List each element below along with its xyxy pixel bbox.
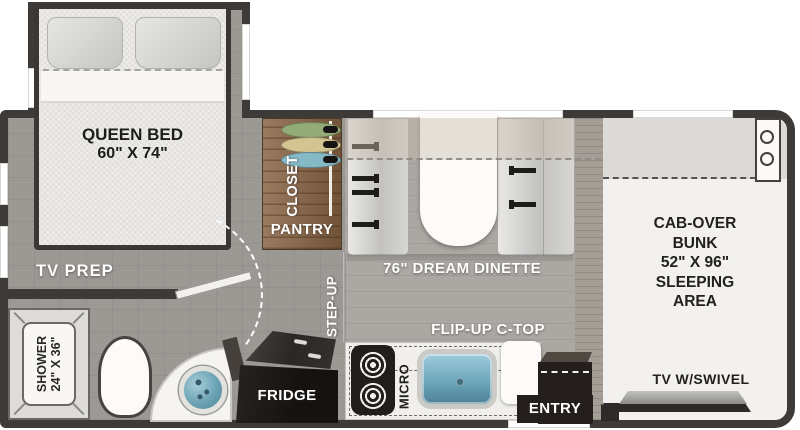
tv-swivel: [619, 391, 747, 404]
fridge-top-face: [240, 331, 336, 369]
shower-bevel: [72, 312, 84, 324]
cooktop: [351, 345, 395, 415]
hanger-hook-icon: [323, 126, 338, 133]
cab-over-line3: 52" X 96": [607, 253, 783, 273]
toilet: [98, 336, 152, 418]
pillow: [47, 17, 123, 69]
cab-over-dashed-line: [603, 177, 756, 179]
shower-label-line2: 24" X 36": [49, 316, 63, 412]
tv-swivel-label: TV W/SWIVEL: [620, 371, 782, 387]
cab-over-line2: BUNK: [607, 234, 783, 254]
burner-icon: [359, 351, 387, 379]
cab-over-line4: SLEEPING: [607, 273, 783, 293]
shower-bevel: [13, 312, 25, 324]
dinette-label: 76" DREAM DINETTE: [348, 260, 576, 277]
burner-icon: [359, 382, 387, 410]
kitchen-sink: [417, 349, 497, 409]
bathroom-wall: [0, 289, 178, 299]
flip-up-ctop-label: FLIP-UP C-TOP: [398, 321, 578, 338]
overhead-cabinet-tint: [346, 118, 574, 160]
hanger-hook-icon: [323, 156, 338, 163]
cab-over-line1: CAB-OVER: [607, 214, 783, 234]
bench-handle: [512, 168, 536, 173]
pantry-label: PANTRY: [262, 221, 342, 238]
tv-mount-bar: [603, 403, 751, 412]
bench-handle: [352, 176, 376, 181]
entry-dashed-line: [541, 371, 589, 373]
window-top-2: [633, 110, 733, 118]
fridge-label: FRIDGE: [244, 387, 330, 404]
queen-bed-label: QUEEN BED 60" X 74": [39, 125, 226, 163]
window-left-2: [0, 226, 8, 278]
window-slide-right: [242, 24, 250, 100]
shower-pan: SHOWER 24" X 36": [22, 322, 76, 406]
shower-label-line1: SHOWER: [35, 316, 49, 412]
shower-label: SHOWER 24" X 36": [35, 316, 63, 412]
cab-over-label: CAB-OVER BUNK 52" X 96" SLEEPING AREA: [607, 214, 783, 312]
cab-dash-panel: [755, 118, 781, 182]
shower: SHOWER 24" X 36": [8, 308, 90, 420]
queen-bed-label-line2: 60" X 74": [39, 145, 226, 163]
cupholder-icon: [760, 130, 774, 144]
queen-bed-label-line1: QUEEN BED: [39, 125, 226, 145]
hanger-hook-icon: [323, 141, 338, 148]
micro-label: MICRO: [397, 357, 412, 417]
pillow: [135, 17, 221, 69]
fridge: FRIDGE: [236, 331, 338, 423]
window-left-1: [0, 163, 8, 205]
shower-bevel: [13, 403, 25, 415]
step-edge: [343, 252, 346, 342]
rv-floorplan: QUEEN BED 60" X 74" SHOWER 24" X 36" CLO…: [0, 0, 800, 430]
bench-handle: [352, 222, 376, 227]
tv-prep-label: TV PREP: [36, 262, 114, 281]
entry-label: ENTRY: [517, 400, 593, 417]
queen-bed: QUEEN BED 60" X 74": [34, 4, 231, 250]
step-up-label: STEP-UP: [325, 267, 340, 347]
cab-over-line5: AREA: [607, 292, 783, 312]
dinette-dashed-line: [347, 158, 601, 160]
bench-handle: [512, 202, 536, 207]
bathroom-sink: [179, 366, 227, 414]
cupholder-icon: [760, 152, 774, 166]
bed-sheet-fold: [41, 71, 224, 103]
sink-drain-icon: [456, 378, 464, 386]
bench-handle: [352, 190, 376, 195]
shower-bevel: [72, 403, 84, 415]
